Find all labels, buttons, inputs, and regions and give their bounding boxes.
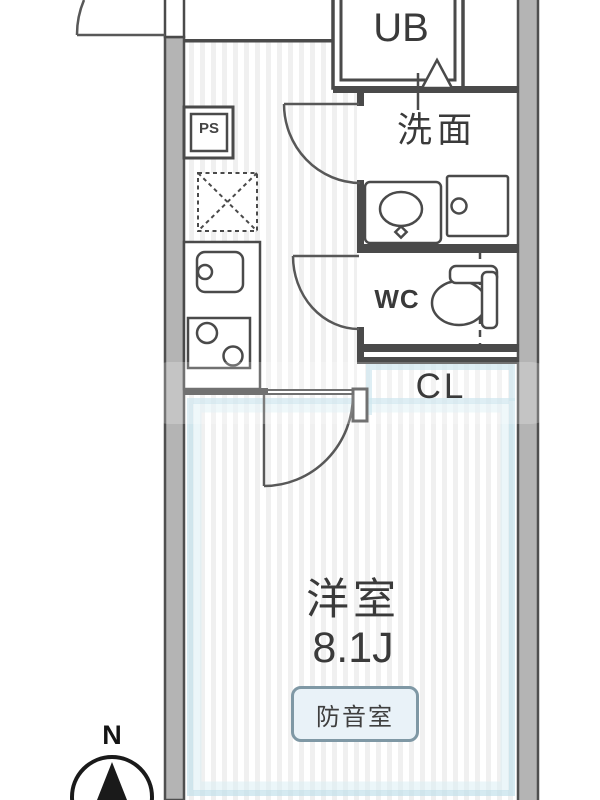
compass-north-label: N (97, 722, 127, 749)
pipe-space-label: PS (189, 121, 229, 136)
closet-label: CL (376, 369, 506, 404)
main-room-label: 洋室 (253, 579, 453, 622)
soundproof-room-badge: 防音室 (291, 686, 419, 742)
washroom-label: 洗面 (355, 113, 519, 148)
door-jamb (353, 389, 367, 421)
stove-icon (188, 318, 250, 368)
unit-bath-label: UB (336, 8, 466, 48)
closet-top-wall (360, 357, 519, 364)
left-outer-wall (165, 37, 184, 800)
right-outer-wall (518, 0, 538, 800)
kitchen-sink-icon (197, 252, 243, 292)
compass-icon (72, 757, 152, 800)
washing-machine-icon (447, 176, 508, 236)
entrance-door (77, 0, 184, 37)
floorplan: UB 洗面 WC CL PS 洋室 8.1J 防音室 N (0, 0, 600, 800)
refrigerator-space-icon (198, 173, 257, 231)
main-room-size: 8.1J (253, 627, 453, 670)
washbasin-icon (365, 182, 441, 243)
wc-label: WC (357, 286, 437, 312)
